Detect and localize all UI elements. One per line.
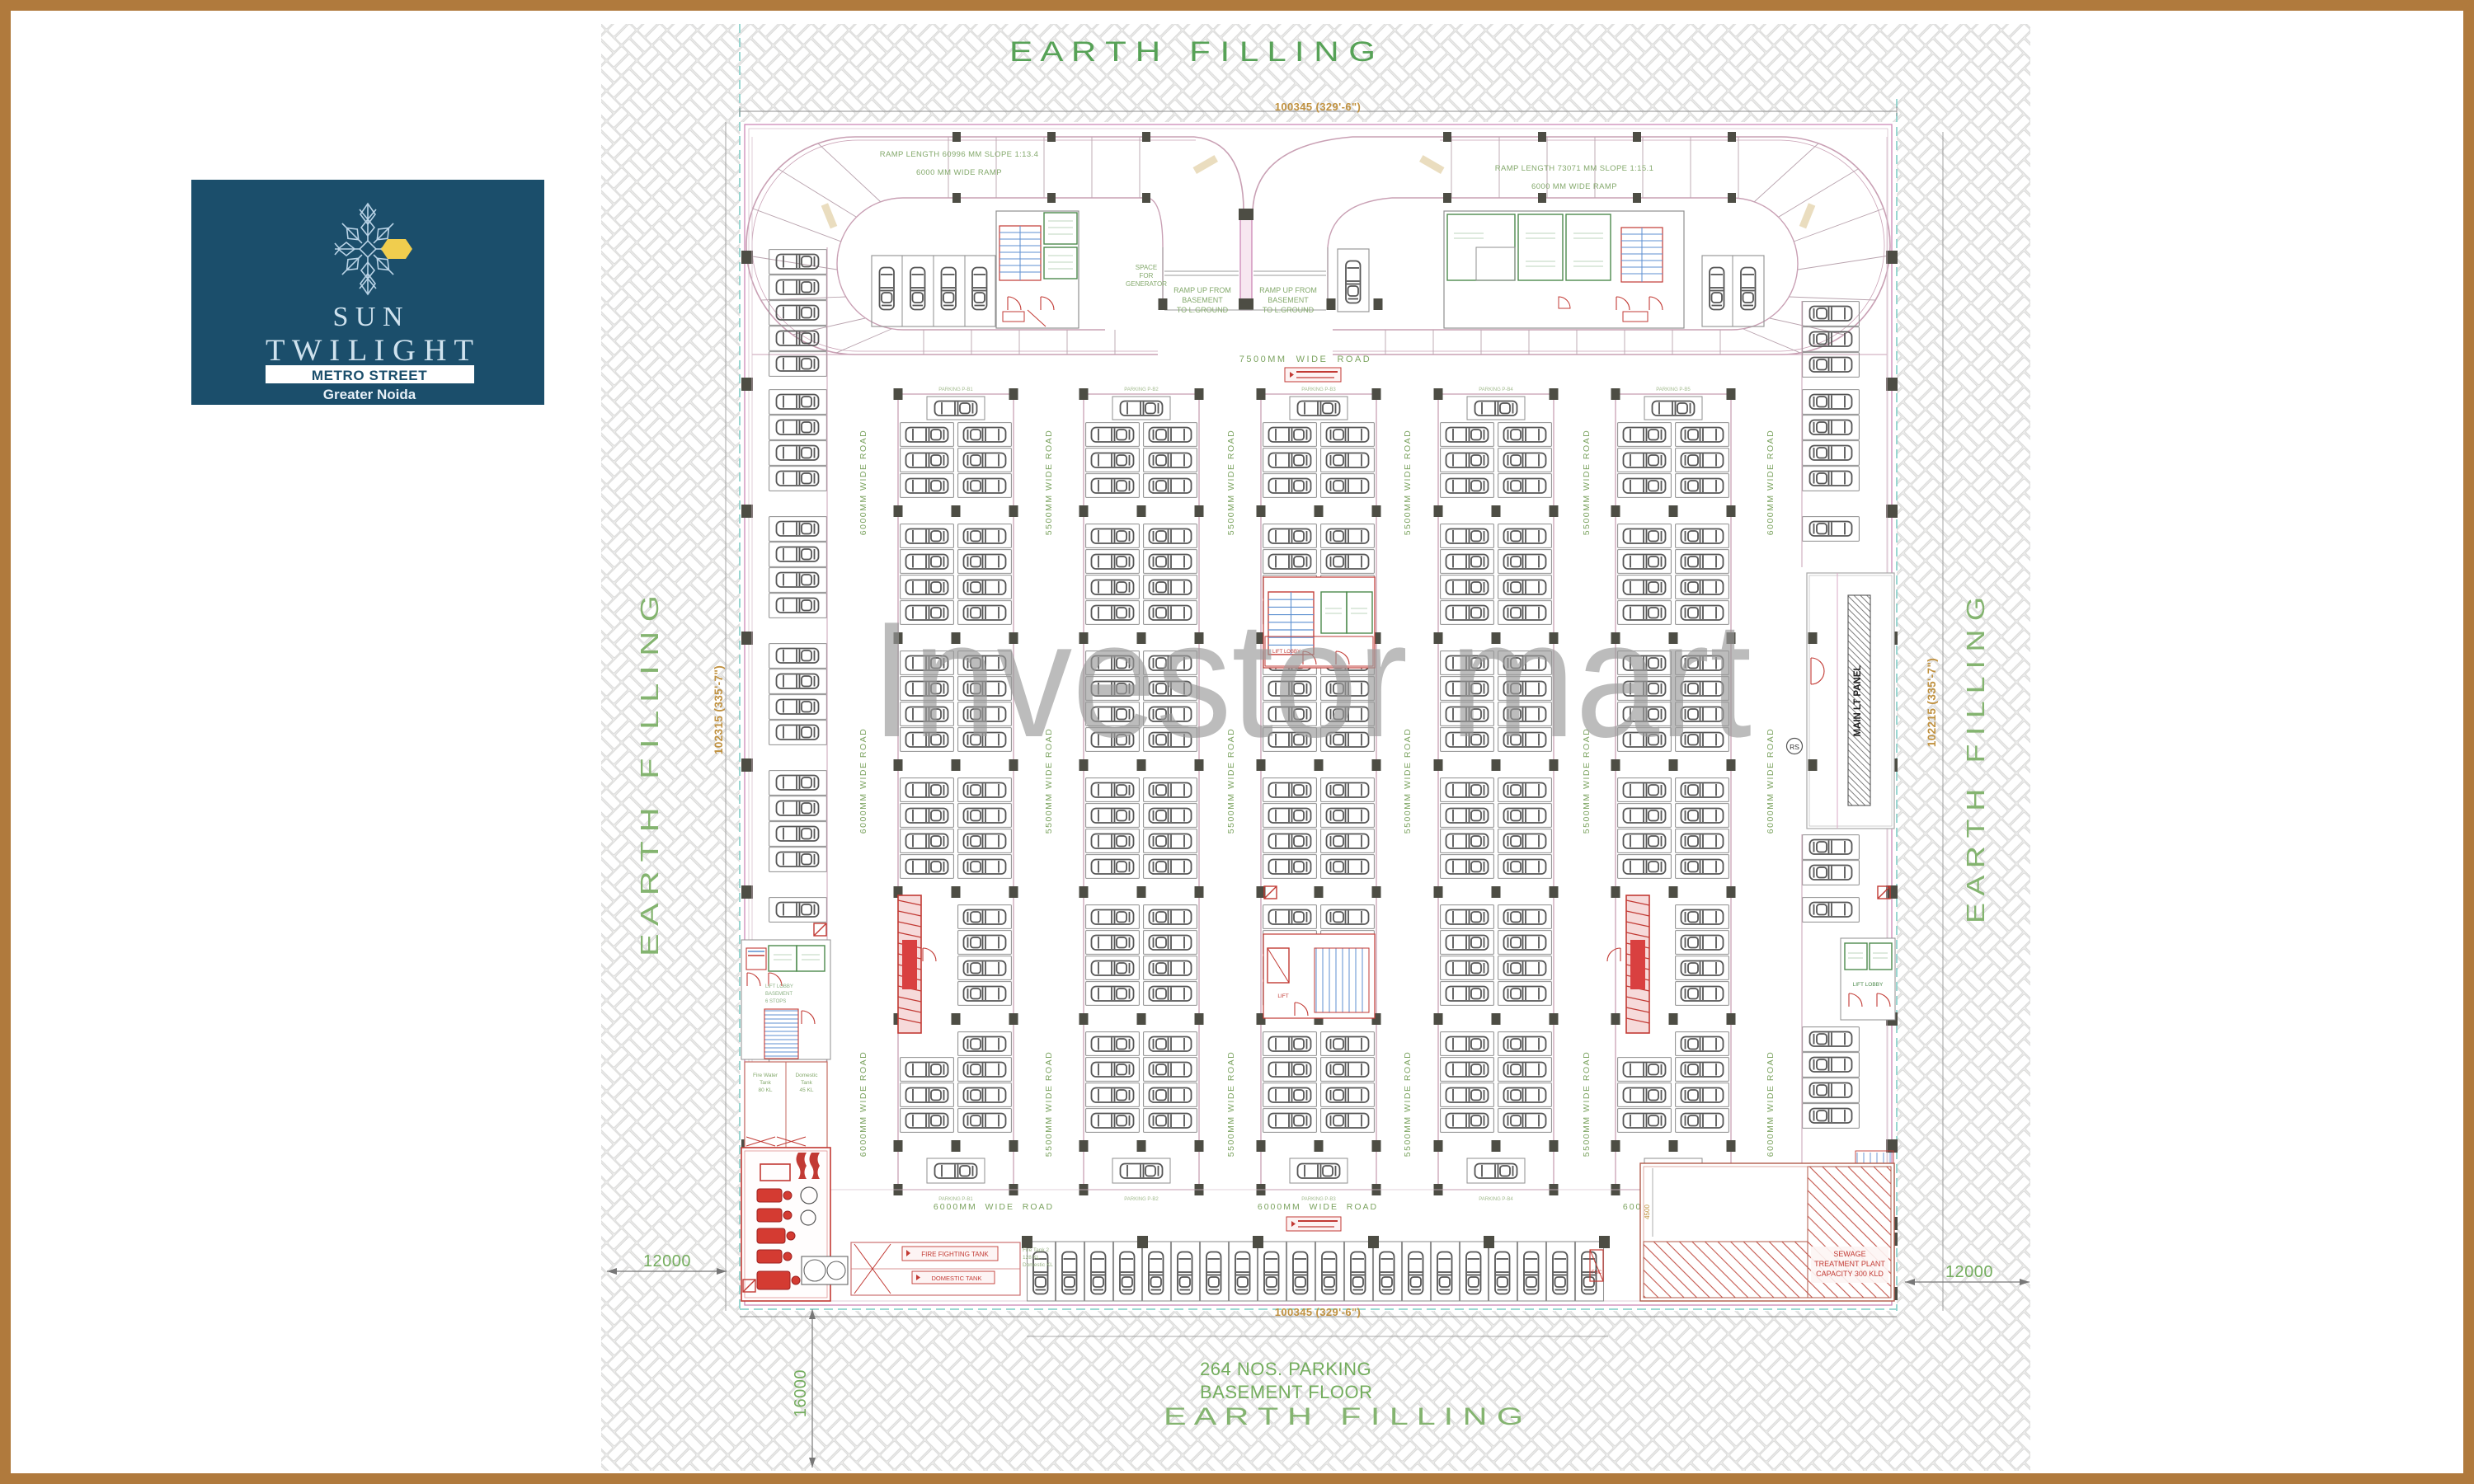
svg-text:PARKING P-B2: PARKING P-B2 [1124,387,1159,392]
svg-text:BASEMENT: BASEMENT [1268,296,1309,304]
svg-text:Domestic KL: Domestic KL [1023,1262,1053,1268]
svg-text:E A R T H F I L L I N G: E A R T H F I L L I N G [1009,36,1376,68]
svg-text:Investor mart: Investor mart [871,588,1752,772]
svg-text:7500MM WIDE ROAD: 7500MM WIDE ROAD [1239,355,1372,364]
svg-text:5500MM WIDE ROAD: 5500MM WIDE ROAD [1226,430,1236,535]
svg-text:12000: 12000 [1945,1263,1993,1281]
svg-text:E A R T H F I L L I N G: E A R T H F I L L I N G [635,595,664,956]
svg-text:6000MM WIDE ROAD: 6000MM WIDE ROAD [1766,1051,1776,1157]
svg-text:RAMP LENGTH 73071 MM SLOPE 1:1: RAMP LENGTH 73071 MM SLOPE 1:15.1 [1495,164,1654,173]
svg-text:SEWAGE: SEWAGE [1833,1250,1865,1258]
svg-text:BASEMENT FLOOR: BASEMENT FLOOR [1200,1382,1373,1402]
svg-text:128 KL: 128 KL [1023,1255,1040,1261]
svg-text:Fire Tank 2: Fire Tank 2 [1023,1247,1049,1253]
svg-text:PARKING P-B5: PARKING P-B5 [1656,387,1691,392]
svg-text:LIFT LOBBY: LIFT LOBBY [1853,982,1884,988]
svg-text:S U N: S U N [332,302,402,332]
svg-text:PARKING P-B1: PARKING P-B1 [938,387,973,392]
svg-text:PARKING P-B4: PARKING P-B4 [1479,1197,1513,1202]
svg-text:FHC: FHC [1592,1270,1602,1275]
svg-text:Greater Noida: Greater Noida [323,387,416,402]
svg-text:100345 (329'-6"): 100345 (329'-6") [1275,101,1362,113]
svg-text:6000MM WIDE ROAD: 6000MM WIDE ROAD [934,1202,1054,1212]
svg-text:PARKING P-B1: PARKING P-B1 [938,1197,973,1202]
svg-text:TREATMENT PLANT: TREATMENT PLANT [1814,1260,1885,1268]
svg-text:6000 MM WIDE RAMP: 6000 MM WIDE RAMP [1531,182,1617,191]
svg-text:4500: 4500 [1644,1205,1651,1219]
svg-text:5500MM WIDE ROAD: 5500MM WIDE ROAD [1582,1051,1592,1157]
svg-text:5500MM WIDE ROAD: 5500MM WIDE ROAD [1044,430,1054,535]
svg-text:6000MM WIDE ROAD: 6000MM WIDE ROAD [858,430,868,535]
svg-text:FOR: FOR [1140,272,1154,279]
svg-text:Tank: Tank [801,1080,812,1086]
svg-text:5500MM WIDE ROAD: 5500MM WIDE ROAD [1226,1051,1236,1157]
svg-text:SPACE: SPACE [1136,264,1158,271]
svg-text:12000: 12000 [643,1252,691,1270]
svg-text:5500MM WIDE ROAD: 5500MM WIDE ROAD [1403,1051,1413,1157]
svg-text:RAMP UP FROM: RAMP UP FROM [1174,286,1231,294]
svg-text:5500MM WIDE ROAD: 5500MM WIDE ROAD [1403,430,1413,535]
svg-text:E A R T H F I L L I N G: E A R T H F I L L I N G [1164,1403,1523,1430]
svg-text:102315 (335'-7"): 102315 (335'-7") [713,665,725,754]
svg-text:PARKING P-B2: PARKING P-B2 [1124,1197,1159,1202]
svg-text:PARKING P-B4: PARKING P-B4 [1479,387,1513,392]
svg-text:RAMP LENGTH 60996 MM SLOPE 1:1: RAMP LENGTH 60996 MM SLOPE 1:13.4 [880,150,1039,159]
svg-text:TO L.GROUND: TO L.GROUND [1177,306,1229,314]
svg-text:T W I L I G H T: T W I L I G H T [266,334,473,368]
svg-text:264 NOS. PARKING: 264 NOS. PARKING [1200,1359,1371,1379]
svg-text:LIFT: LIFT [1277,993,1288,999]
svg-text:MAIN LT PANEL: MAIN LT PANEL [1853,665,1863,736]
svg-text:Tank: Tank [760,1080,771,1086]
svg-text:6000MM WIDE ROAD: 6000MM WIDE ROAD [858,728,868,834]
svg-text:6000MM WIDE ROAD: 6000MM WIDE ROAD [1766,430,1776,535]
svg-text:BASEMENT: BASEMENT [765,992,793,997]
svg-text:6000MM WIDE ROAD: 6000MM WIDE ROAD [1258,1202,1378,1212]
svg-text:LIFT LOBBY: LIFT LOBBY [765,984,793,989]
svg-text:Domestic: Domestic [795,1073,818,1078]
svg-text:TO L.GROUND: TO L.GROUND [1263,306,1315,314]
svg-text:80 KL: 80 KL [759,1087,773,1093]
svg-text:METRO STREET: METRO STREET [312,368,427,383]
svg-text:PARKING P-B3: PARKING P-B3 [1301,1197,1336,1202]
svg-text:6000 MM WIDE RAMP: 6000 MM WIDE RAMP [916,168,1002,177]
svg-text:FIRE FIGHTING TANK: FIRE FIGHTING TANK [921,1251,989,1258]
svg-text:Fire Water: Fire Water [753,1073,778,1078]
svg-text:RS: RS [1790,743,1799,751]
svg-text:CAPACITY 300 KLD: CAPACITY 300 KLD [1816,1270,1884,1278]
svg-text:5500MM WIDE ROAD: 5500MM WIDE ROAD [1582,430,1592,535]
svg-text:45 KL: 45 KL [800,1087,814,1093]
svg-text:100345 (329'-6"): 100345 (329'-6") [1275,1306,1362,1318]
svg-text:RAMP UP FROM: RAMP UP FROM [1259,286,1317,294]
svg-text:DOMESTIC TANK: DOMESTIC TANK [932,1275,982,1282]
svg-text:GENERATOR: GENERATOR [1126,280,1167,288]
svg-text:102215 (335'-7"): 102215 (335'-7") [1926,658,1938,747]
svg-text:16000: 16000 [792,1369,810,1417]
svg-text:E A R T H F I L L I N G: E A R T H F I L L I N G [1961,597,1990,923]
svg-text:PARKING P-B3: PARKING P-B3 [1301,387,1336,392]
svg-text:BASEMENT: BASEMENT [1182,296,1223,304]
svg-text:6 STOPS: 6 STOPS [765,999,786,1004]
svg-text:6000MM WIDE ROAD: 6000MM WIDE ROAD [858,1051,868,1157]
svg-text:6000MM WIDE ROAD: 6000MM WIDE ROAD [1766,728,1776,834]
svg-text:5500MM WIDE ROAD: 5500MM WIDE ROAD [1044,1051,1054,1157]
